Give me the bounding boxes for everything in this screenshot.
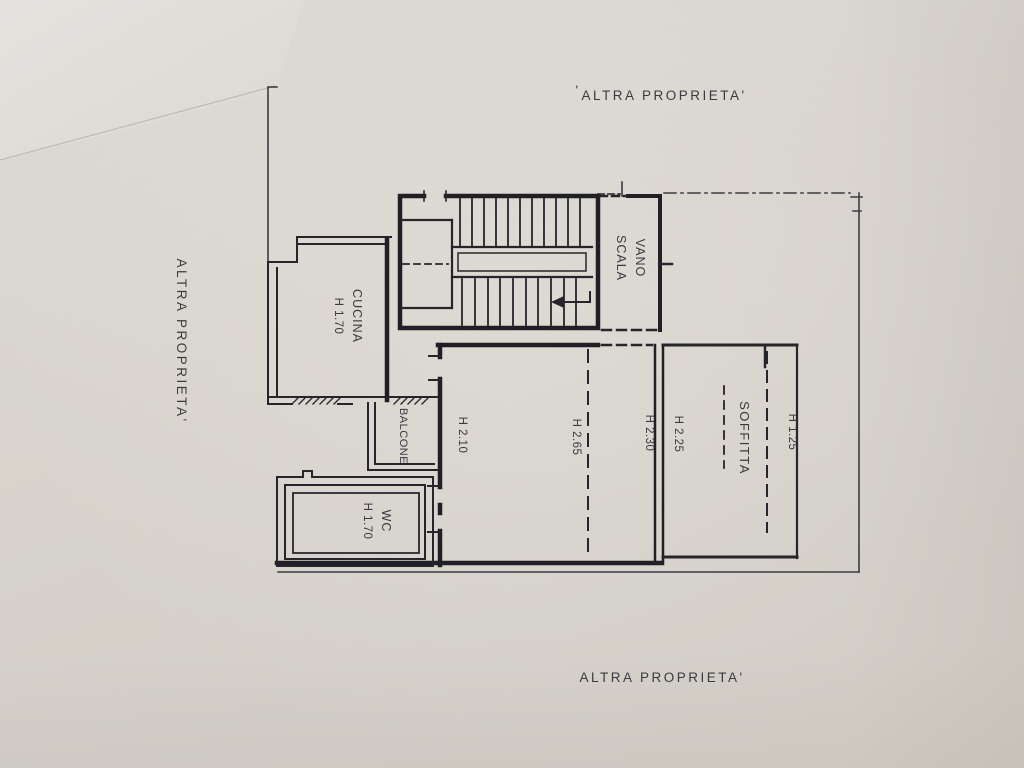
label-height-265: H 2.65 (570, 419, 582, 456)
cucina-window-hatch (292, 397, 341, 404)
stair-treads-upper (460, 198, 580, 246)
scanned-floorplan-page: ALTRA PROPRIETA' ' ALTRA PROPRIETA' ALTR… (0, 0, 1024, 768)
label-vano-scala-line2: SCALA (614, 235, 628, 281)
main-soffitta-divider-wall (655, 345, 663, 560)
wc-inner-outline (293, 493, 419, 553)
label-height-210: H 2.10 (456, 417, 468, 454)
wc-walls (277, 471, 433, 566)
label-altra-proprieta-left: ALTRA PROPRIETA' (174, 258, 189, 423)
label-height-230: H 2.30 (643, 415, 655, 452)
label-vano-scala-line1: VANO (633, 239, 647, 278)
cucina-walls (268, 237, 391, 404)
stair-stringer (452, 247, 592, 277)
label-altra-proprieta-top: ALTRA PROPRIETA' (581, 88, 746, 103)
label-altra-proprieta-bottom: ALTRA PROPRIETA' (579, 670, 744, 685)
label-soffitta: SOFFITTA (737, 401, 752, 475)
stray-apostrophe-mark: ' (575, 83, 580, 98)
label-wc-height: H 1.70 (361, 503, 373, 540)
stair-arrow-head (551, 296, 564, 308)
paper-fold-edge (0, 86, 275, 160)
balcone-window-hatch (394, 397, 429, 404)
label-wc: WC (379, 510, 393, 533)
label-soffitta-height: H 1.25 (786, 414, 798, 451)
floor-plan-drawing: ALTRA PROPRIETA' ' ALTRA PROPRIETA' ALTR… (0, 0, 1024, 768)
label-cucina: CUCINA (350, 289, 364, 343)
label-balcone: BALCONE (397, 408, 409, 464)
stair-top-door-jambs (424, 191, 446, 201)
label-cucina-height: H 1.70 (332, 298, 344, 335)
label-height-225: H 2.25 (672, 416, 684, 453)
